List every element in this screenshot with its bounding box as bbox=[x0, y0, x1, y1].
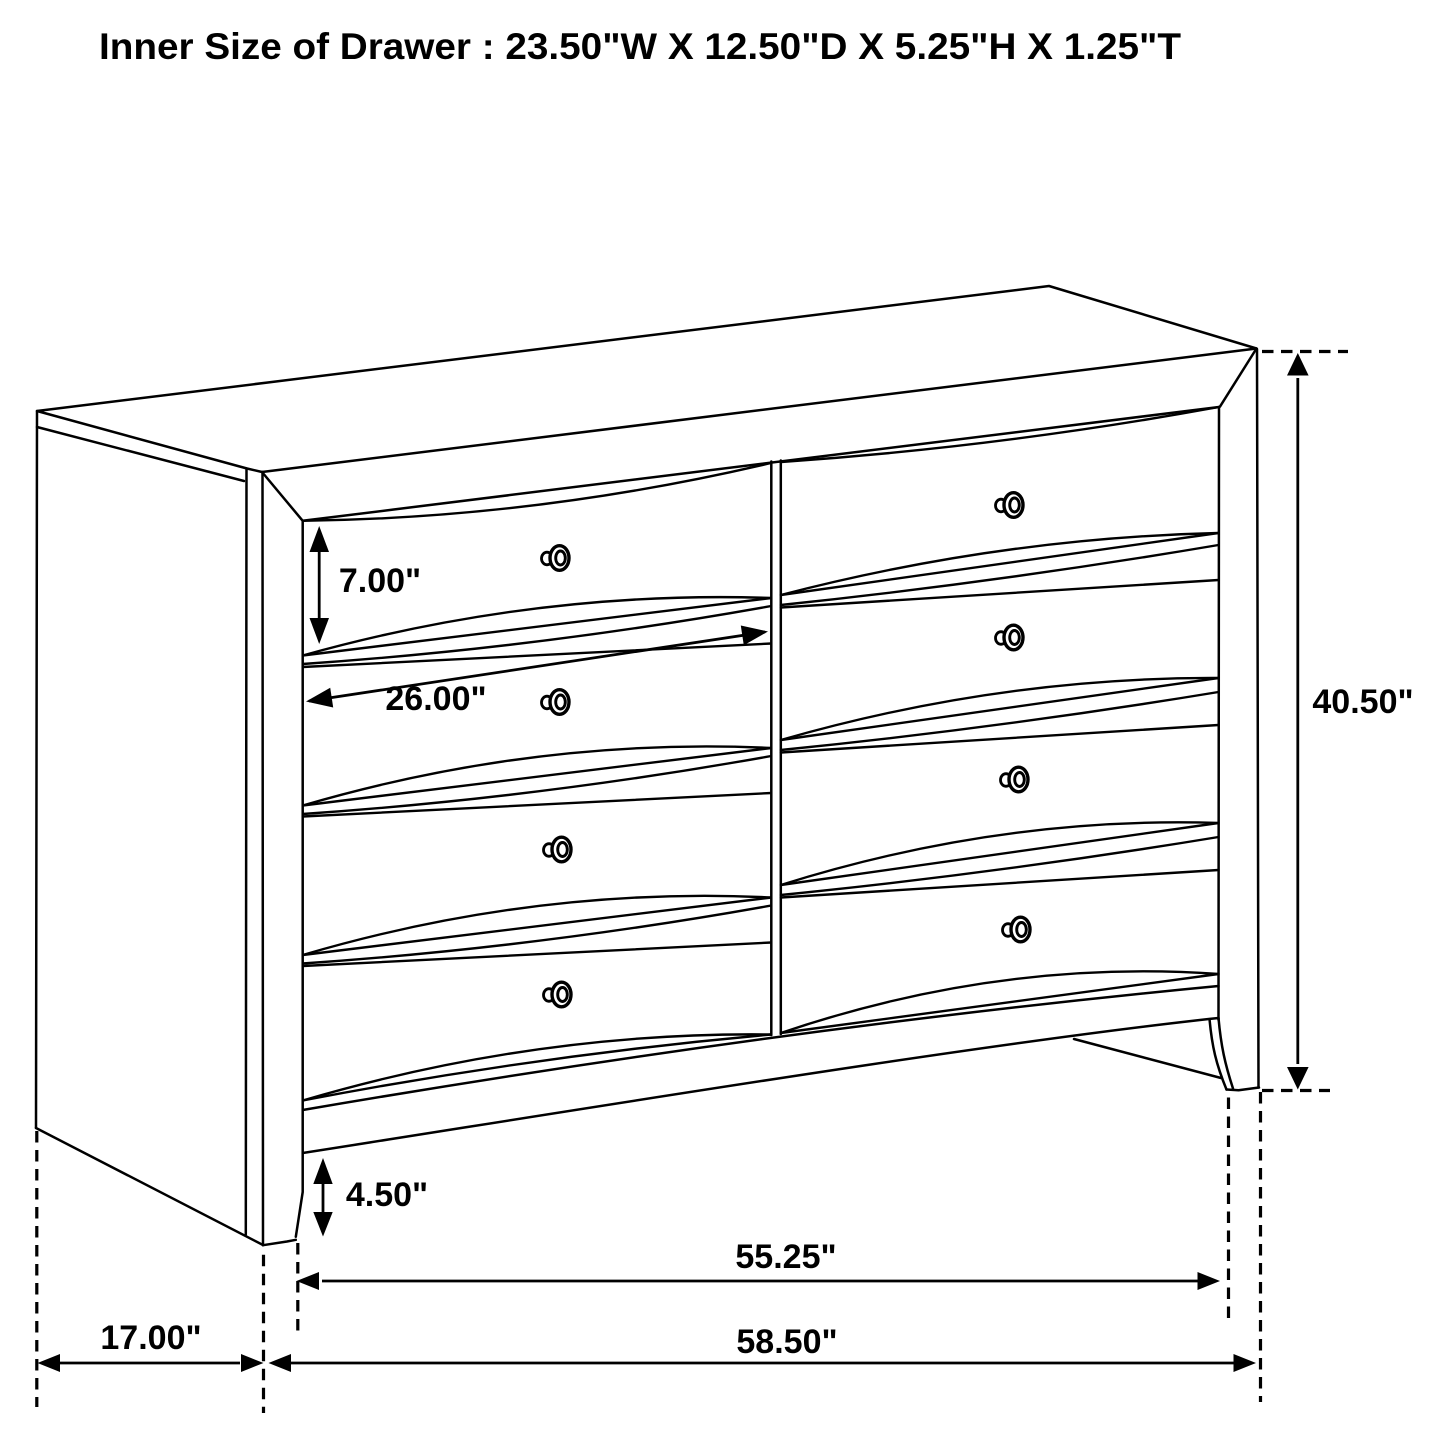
svg-text:58.50": 58.50" bbox=[736, 1323, 837, 1361]
svg-text:26.00": 26.00" bbox=[385, 680, 486, 718]
svg-text:7.00": 7.00" bbox=[339, 562, 421, 600]
svg-text:55.25": 55.25" bbox=[735, 1238, 836, 1276]
svg-text:Inner Size of Drawer : 23.50"W: Inner Size of Drawer : 23.50"W X 12.50"D… bbox=[99, 26, 1181, 67]
svg-text:17.00": 17.00" bbox=[100, 1319, 201, 1357]
svg-text:4.50": 4.50" bbox=[346, 1176, 428, 1214]
svg-text:40.50": 40.50" bbox=[1312, 683, 1413, 721]
